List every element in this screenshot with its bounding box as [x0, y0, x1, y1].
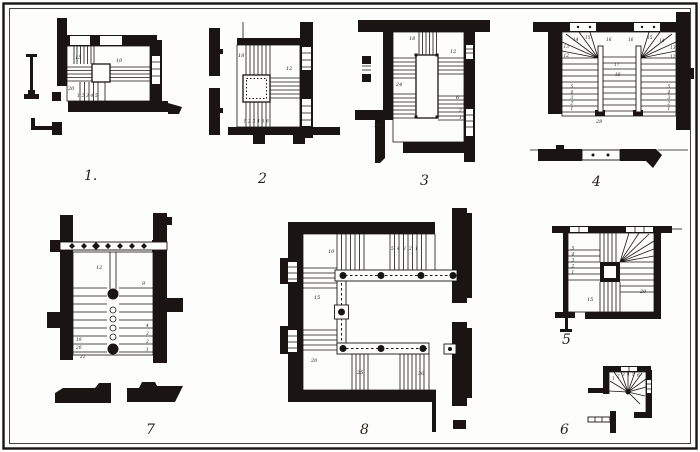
stair-label: 21 — [79, 355, 85, 360]
tread-number: 2 — [571, 265, 575, 270]
tread-number: 5 — [391, 247, 394, 252]
tread-number: 6 — [637, 374, 640, 379]
figure-number: 5 — [562, 332, 571, 348]
door-opening — [302, 47, 311, 70]
stair-label: 30 — [374, 123, 381, 129]
well-baluster-ticks — [247, 79, 267, 99]
tread-number: 4 — [145, 324, 149, 329]
figure-7-plan: 12 9 4 3 2 1 19 20 21 7 — [47, 213, 183, 438]
wall-silhouette — [588, 366, 652, 433]
winder-number: 12 — [670, 55, 676, 60]
figure-4-plan: 12 13 14 15 16 16 15 14 13 12 17 18 5 4 … — [530, 12, 694, 190]
tread-number: 2 — [570, 102, 574, 107]
newel-column — [420, 345, 427, 352]
tread-number: 5 — [668, 85, 671, 90]
winder-number: 16 — [606, 38, 612, 43]
figure-1-plan: 15 10 20 1 2 3 4 5 1. — [24, 18, 182, 184]
stair-label: 10 — [116, 58, 123, 64]
tread-lines — [246, 45, 300, 127]
stair-label: 19 — [76, 338, 82, 343]
stair-label: 10 — [328, 249, 335, 255]
column-post — [110, 316, 116, 322]
landing-slot — [570, 23, 596, 31]
figure-number: 2 — [257, 171, 267, 187]
newel-post — [626, 390, 631, 395]
figure-number: 8 — [360, 422, 369, 438]
plate-drawing: 15 10 20 1 2 3 4 5 1. 18 12 1 2 3 4 5 6 … — [0, 0, 700, 452]
winder-number: 13 — [564, 45, 570, 50]
tread-number: 2 — [145, 340, 149, 345]
tread-number: 17 — [614, 63, 620, 68]
figure-8-plan: 10 5 4 3 2 1 15 20 25 30 8 — [280, 208, 472, 438]
figure-number: 7 — [146, 422, 155, 438]
stair-label: 28 — [595, 119, 602, 125]
tread-number: 4 — [90, 94, 94, 99]
stringer — [598, 46, 603, 112]
stair-label: 30 — [418, 371, 425, 377]
tread-number: 1 — [572, 271, 575, 276]
landing-slot — [70, 36, 90, 45]
landing-slot — [626, 227, 653, 232]
tread-number: 4 — [571, 253, 575, 258]
figure-number: 3 — [420, 173, 429, 189]
winder-number: 15 — [647, 36, 653, 41]
tread-number: 1 — [244, 120, 247, 125]
stair-label: 9 — [142, 281, 146, 287]
tread-number: 4 — [256, 120, 260, 125]
tread-number: 5 — [95, 94, 98, 99]
stair-label: 18 — [409, 36, 415, 42]
newel-well — [604, 266, 616, 278]
wall-silhouette — [280, 208, 472, 432]
newel-column — [338, 309, 345, 316]
stair-outline — [73, 252, 153, 355]
winder-number: 16 — [628, 38, 634, 43]
door-jamb-ticks — [362, 66, 371, 70]
figure-2-plan: 18 12 1 2 3 4 5 6 2 — [209, 22, 340, 187]
step-strip — [588, 417, 610, 422]
tread-number: 3 — [572, 259, 575, 264]
winder-number: 14 — [659, 39, 665, 44]
tread-number: 4 — [396, 247, 400, 252]
balustrade-beam — [60, 242, 167, 250]
newel-column — [418, 272, 425, 279]
door-opening — [302, 99, 311, 126]
tread-number: 1 — [459, 116, 462, 121]
stair-label: 12 — [286, 66, 292, 72]
tread-number: 2 — [616, 375, 620, 380]
tread-number: 1 — [571, 107, 574, 112]
winder-number: 15 — [585, 36, 591, 41]
tread-number: 3 — [86, 94, 89, 99]
tread-number: 3 — [253, 120, 256, 125]
figure-number: 6 — [560, 422, 569, 438]
wall-silhouette — [209, 22, 340, 144]
column-post — [108, 289, 119, 300]
tread-number: 4 — [667, 91, 671, 96]
open-well — [243, 75, 270, 102]
engraved-stair-plans-plate: 15 10 20 1 2 3 4 5 1. 18 12 1 2 3 4 5 6 … — [0, 0, 700, 452]
stair-label: 20 — [639, 289, 647, 295]
figure-5-plan: 5 4 3 2 1 20 15 5 — [552, 226, 682, 348]
stair-label: 20 — [310, 358, 318, 364]
rail-dot — [607, 154, 610, 157]
stair-label: 20 — [67, 86, 75, 92]
rail-dot — [592, 154, 595, 157]
tread-number: 2 — [81, 94, 85, 99]
tread-number: 5 — [632, 373, 635, 378]
door-opening — [647, 380, 651, 393]
door-opening — [152, 56, 160, 84]
stair-label: 20 — [75, 346, 82, 351]
tread-lines — [393, 32, 464, 120]
well-divider — [110, 252, 116, 289]
tread-number: 3 — [403, 247, 406, 252]
stringer — [636, 46, 641, 112]
tread-number: 3 — [146, 332, 149, 337]
stair-label: 24 — [395, 82, 402, 88]
tread-number: 5 — [572, 247, 575, 252]
column-post — [110, 307, 116, 313]
open-well — [416, 55, 438, 118]
tread-number: 1 — [612, 377, 615, 382]
tread-number: 5 — [262, 120, 265, 125]
winder-number: 13 — [670, 46, 676, 51]
landing-slot — [634, 23, 660, 31]
winder-number: 14 — [573, 38, 579, 43]
door-opening — [466, 45, 473, 59]
newel-column — [340, 345, 347, 352]
stair-label: 18 — [238, 53, 244, 59]
newel-column — [450, 272, 457, 279]
tread-number: 3 — [668, 96, 671, 101]
tread-number: 3 — [622, 373, 625, 378]
pier-dot — [448, 347, 452, 351]
tread-number: 6 — [266, 120, 269, 125]
newel-column — [378, 345, 385, 352]
tread-number: 2 — [247, 120, 251, 125]
stair-label: 12 — [450, 49, 456, 55]
landing-slot — [100, 36, 122, 45]
tread-number: 2 — [667, 102, 671, 107]
stair-label: 15 — [587, 297, 593, 303]
tread-number: 2 — [458, 109, 462, 114]
door-opening — [466, 109, 473, 136]
winder-fan — [562, 32, 676, 58]
wall-silhouette — [47, 213, 183, 363]
tread-number: 3 — [571, 96, 574, 101]
well-corner-posts — [415, 54, 439, 119]
tread-number: 4 — [570, 91, 574, 96]
lower-rail — [582, 150, 620, 160]
newel-column — [378, 272, 385, 279]
figure-number: 4 — [591, 174, 601, 190]
tread-number: 2 — [408, 247, 412, 252]
column-post — [108, 344, 119, 355]
newel-post — [92, 64, 110, 82]
stair-label: 15 — [75, 55, 81, 61]
tread-number: 1 — [77, 94, 80, 99]
stair-label: 25 — [356, 370, 363, 376]
tread-number: 5 — [571, 85, 574, 90]
tread-number: 1 — [146, 348, 149, 353]
tread-number: 1 — [415, 247, 418, 252]
column-post — [110, 325, 116, 331]
stair-label: 12 — [96, 265, 102, 271]
newel-column — [340, 272, 347, 279]
winder-fan — [620, 233, 654, 262]
stair-label: 15 — [314, 295, 320, 301]
molding-profiles — [55, 382, 183, 403]
door-opening — [288, 330, 297, 352]
column-post — [110, 334, 116, 340]
figure-6-plan: 1 2 3 4 5 6 6 — [560, 366, 652, 438]
figure-3-plan: 18 12 24 6 2 1 30 3 — [355, 20, 490, 189]
figure-number: 1. — [84, 168, 97, 184]
tread-number: 4 — [626, 373, 630, 378]
tread-lines — [303, 234, 426, 390]
tread-number: 1 — [668, 107, 671, 112]
tread-number: 18 — [615, 73, 621, 78]
winder-number: 12 — [564, 54, 570, 59]
